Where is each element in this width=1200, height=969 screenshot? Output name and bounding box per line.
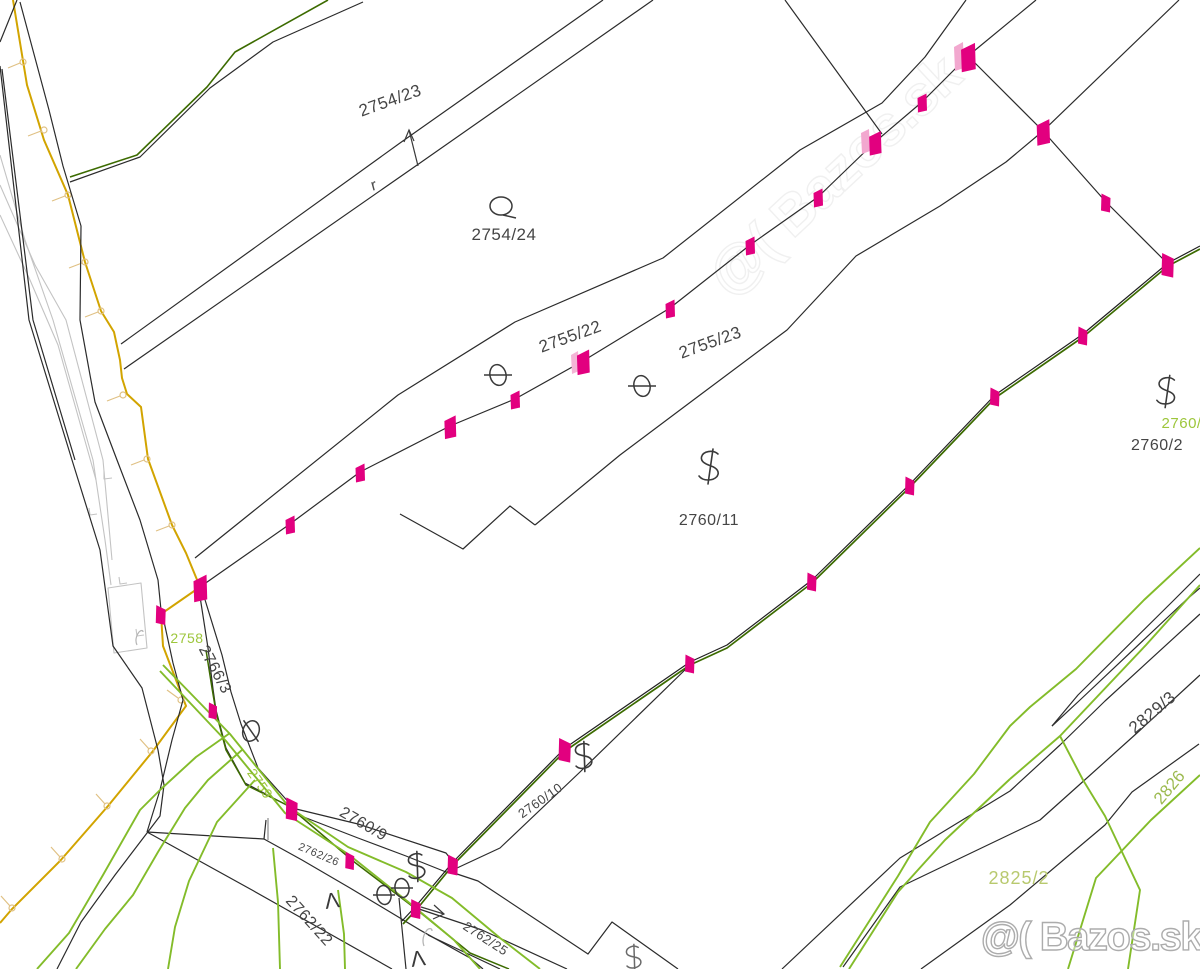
svg-text:2760/1: 2760/1 bbox=[1162, 415, 1200, 432]
svg-text:2754/24: 2754/24 bbox=[472, 225, 537, 244]
svg-text:@( Bazos.sk: @( Bazos.sk bbox=[981, 915, 1200, 959]
svg-text:2760/11: 2760/11 bbox=[679, 512, 739, 529]
svg-text:2825/2: 2825/2 bbox=[988, 868, 1049, 888]
svg-text:2760/2: 2760/2 bbox=[1131, 437, 1183, 454]
svg-text:2758: 2758 bbox=[170, 630, 203, 646]
